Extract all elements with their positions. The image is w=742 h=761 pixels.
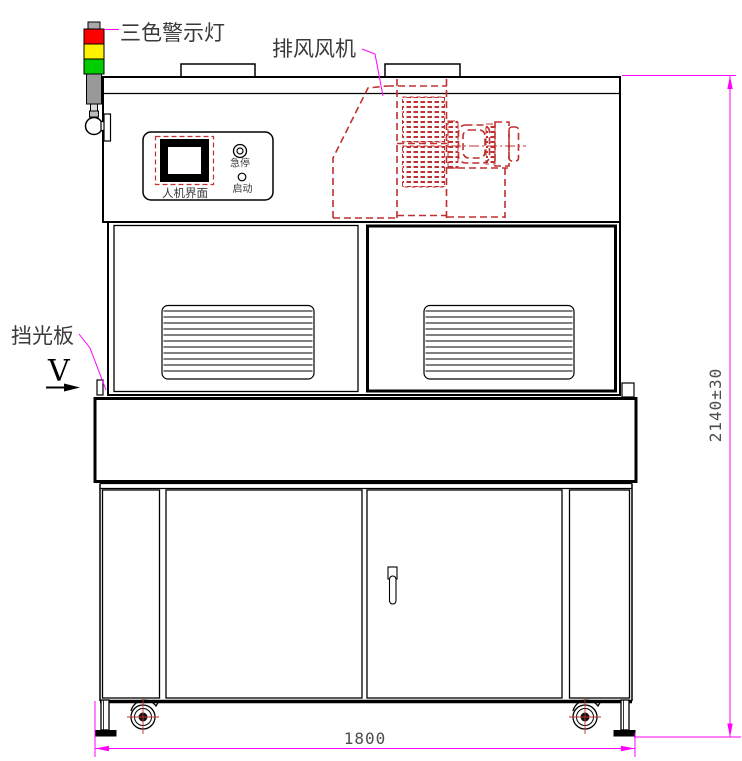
lamp-ball-joint [86,118,103,135]
view-letter-label: V [47,354,71,389]
roof-bump-left [181,64,255,77]
motor-flange-fins [448,121,458,168]
height-dimension-text: 2140±30 [706,368,725,442]
lamp-red-segment [84,29,104,44]
motor-end-cap [509,127,519,161]
height-arrow-down [727,724,732,738]
width-arrow-left [95,746,109,751]
machine-structure [95,64,637,737]
exhaust-fan-label: 排风风机 [272,37,356,61]
left-caster [131,700,159,729]
fan-fin-block-lower [403,146,445,187]
motor-body-inner [463,130,485,158]
roof-bump-right [385,64,460,77]
lower-door-left[interactable] [166,490,362,698]
right-foot-base [614,730,636,737]
estop-button[interactable] [234,145,247,158]
left-foot-post [101,700,109,730]
right-door-panel[interactable] [368,226,616,391]
warning-light-stack [84,22,111,141]
left-door-panel[interactable] [114,226,358,392]
right-foot-post [621,700,629,730]
lower-panel-right [570,490,630,698]
width-arrow-right [621,746,635,751]
motor-rear-fins [486,124,495,164]
hmi-screen[interactable] [168,147,201,174]
fan-fin-block-upper [403,97,445,142]
start-button[interactable] [238,173,246,181]
door-handle[interactable] [390,576,397,604]
warning-light-label: 三色警示灯 [120,21,225,45]
lamp-wall-bracket [104,114,111,141]
lamp-yellow-segment [84,44,104,59]
fan-duct [333,86,387,218]
leader-lines [79,30,383,391]
lower-cabinet [100,484,632,702]
motor-end-housing [495,122,509,166]
lamp-pole [87,74,102,104]
estop-button-inner [237,148,243,154]
lamp-stem-block [90,111,99,117]
light-shield-label: 挡光板 [11,324,74,348]
right-caster [573,700,601,729]
exhaust-fan [333,79,526,218]
estop-label: 急停 [230,157,250,170]
mid-section-outline [108,222,620,395]
hmi-label: 人机界面 [162,186,208,200]
exhaust-fan-leader [362,49,383,96]
lower-panel-left [103,490,160,698]
mid-section [97,222,634,397]
machine-front-view-drawing: 三色警示灯 排风风机 挡光板 V 人机界面 急停 启动 2140±30 1800 [0,0,742,761]
width-dimension-text: 1800 [344,729,387,748]
height-arrow-up [727,76,732,89]
bench-band [95,399,636,482]
light-shield-tab-left [97,380,103,395]
lamp-cap [88,22,100,29]
right-vent-louvers [426,311,573,371]
lamp-green-segment [84,59,104,74]
start-label: 启动 [233,182,253,195]
light-shield-tab-right [622,383,634,397]
left-foot-base [95,730,117,737]
lamp-stem [91,104,98,111]
left-vent-louvers [164,311,313,371]
